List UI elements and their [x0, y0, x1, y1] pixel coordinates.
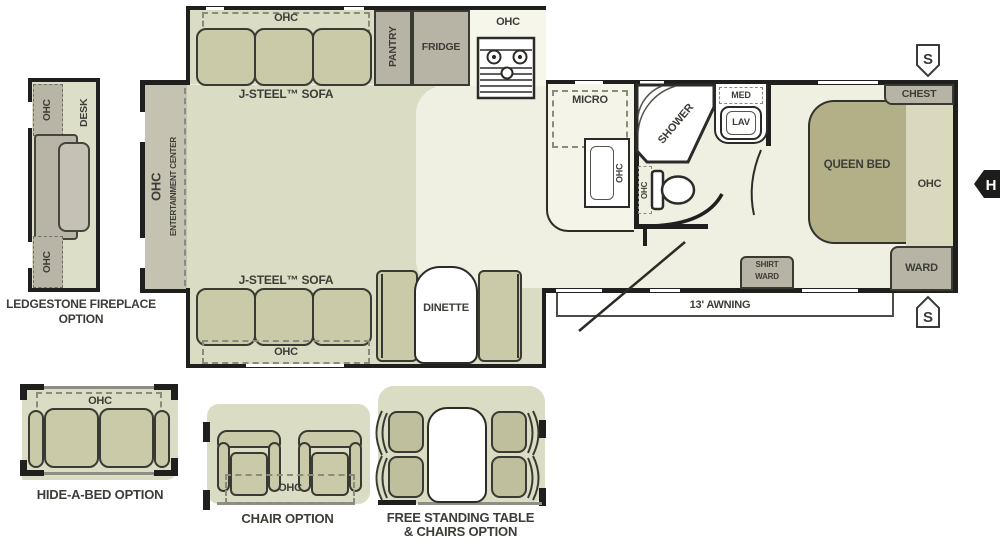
chest-label: CHEST	[884, 84, 954, 105]
wall-corner	[203, 490, 210, 510]
hitch-letter: H	[986, 177, 997, 194]
toilet-ohc-label: OHC	[638, 166, 652, 214]
window-gap	[206, 7, 224, 10]
fireplace-caption-2: OPTION	[0, 311, 162, 326]
wall-corner	[171, 458, 178, 476]
speaker-badge-bottom: S	[917, 297, 939, 327]
chair-ohc-label: OHC	[258, 480, 322, 496]
window-gap	[27, 102, 32, 128]
hideabed-cushion	[99, 408, 154, 468]
range-ohc-label: OHC	[484, 14, 532, 30]
window-gap	[246, 364, 344, 367]
shirt-ward-label-2: WARD	[740, 271, 794, 283]
dinette-bench-divider	[381, 274, 383, 358]
bed-ohc-strip	[906, 85, 953, 246]
speaker-top-letter: S	[923, 51, 933, 68]
hideabed-armrest	[28, 410, 44, 468]
dining-chair	[388, 456, 424, 498]
fireplace-caption-1: LEDGESTONE FIREPLACE	[0, 296, 162, 311]
dinette-bench	[478, 270, 522, 362]
fireplace-desk-surface	[58, 142, 90, 232]
sofa-top-cushion	[254, 28, 314, 86]
queen-bed-label: QUEEN BED	[808, 158, 906, 174]
window-gap	[139, 112, 145, 142]
window-gap	[802, 289, 858, 292]
wall-corner	[203, 422, 210, 442]
awning-bracket-left	[556, 293, 558, 317]
sofa-top-cushion	[196, 28, 256, 86]
dinette-bench-divider	[517, 274, 519, 358]
table-caption-1: FREE STANDING TABLE	[363, 510, 558, 525]
window-gap	[640, 81, 664, 84]
hideabed-caption: HIDE-A-BED OPTION	[5, 486, 195, 502]
wall-corner	[378, 500, 416, 505]
sofa-top-cushion	[312, 28, 372, 86]
sofa-bottom-cushion	[254, 288, 314, 346]
speaker-bottom-letter: S	[923, 309, 933, 326]
micro-label: MICRO	[552, 92, 628, 108]
shirt-ward-label-1: SHIRT	[740, 259, 794, 271]
window-gap	[575, 81, 603, 84]
wall-corner	[20, 384, 44, 390]
entry-door-gap	[556, 289, 602, 292]
med-label: MED	[719, 87, 763, 104]
wall-corner	[20, 470, 44, 476]
sink-basin	[590, 146, 614, 200]
bed-ohc-label: OHC	[906, 176, 953, 192]
fireplace-ohc-top-label: OHC	[33, 84, 63, 136]
sink-ohc-label: OHC	[613, 146, 627, 200]
hideabed-wall-line	[38, 386, 158, 389]
hitch-badge: H	[974, 170, 1000, 198]
free-table	[427, 407, 487, 503]
awning-label: 13' AWNING	[640, 297, 800, 313]
dining-chair	[491, 456, 527, 498]
window-gap	[27, 242, 32, 268]
wall-right	[953, 80, 958, 293]
fridge-label: FRIDGE	[412, 10, 470, 84]
sofa-bottom-cushion	[312, 288, 372, 346]
sofa-bottom-cushion	[196, 288, 256, 346]
sofa-bottom-label: J-STEEL™ SOFA	[200, 273, 372, 287]
hideabed-cushion	[44, 408, 99, 468]
dinette-label: DINETTE	[414, 300, 478, 316]
sofa-top-ohc-label: OHC	[242, 10, 330, 26]
hideabed-ohc-label: OHC	[70, 394, 130, 409]
hideabed-armrest	[154, 410, 170, 468]
table-caption-2: & CHAIRS OPTION	[363, 524, 558, 539]
awning-line	[556, 315, 894, 317]
hideabed-wall-line	[38, 472, 158, 475]
window-gap	[139, 238, 145, 268]
pantry-label: PANTRY	[374, 10, 412, 84]
speaker-badge-top: S	[917, 45, 939, 76]
chair-caption: CHAIR OPTION	[205, 511, 370, 526]
bath-wall-bottom	[634, 224, 708, 229]
sofa-bottom-ohc-label: OHC	[242, 344, 330, 360]
dining-chair	[388, 411, 424, 453]
wardrobe-label: WARD	[890, 246, 953, 291]
dining-chair	[491, 411, 527, 453]
desk-label: DESK	[72, 86, 96, 140]
wall-corner	[171, 384, 178, 400]
awning-bracket-right	[892, 293, 894, 317]
lav-label: LAV	[720, 106, 762, 140]
window-gap	[650, 289, 680, 292]
sofa-top-label: J-STEEL™ SOFA	[200, 87, 372, 101]
floorplan-canvas: OHC ENTERTAINMENT CENTER OHC J-STEEL™ SO…	[0, 0, 1000, 541]
living-room-floor	[145, 85, 435, 288]
entertainment-label: ENTERTAINMENT CENTER	[164, 85, 184, 289]
wall-corner	[539, 420, 546, 438]
window-gap	[818, 81, 878, 84]
window-gap	[344, 7, 364, 10]
fireplace-ohc-bottom-label: OHC	[33, 236, 63, 288]
